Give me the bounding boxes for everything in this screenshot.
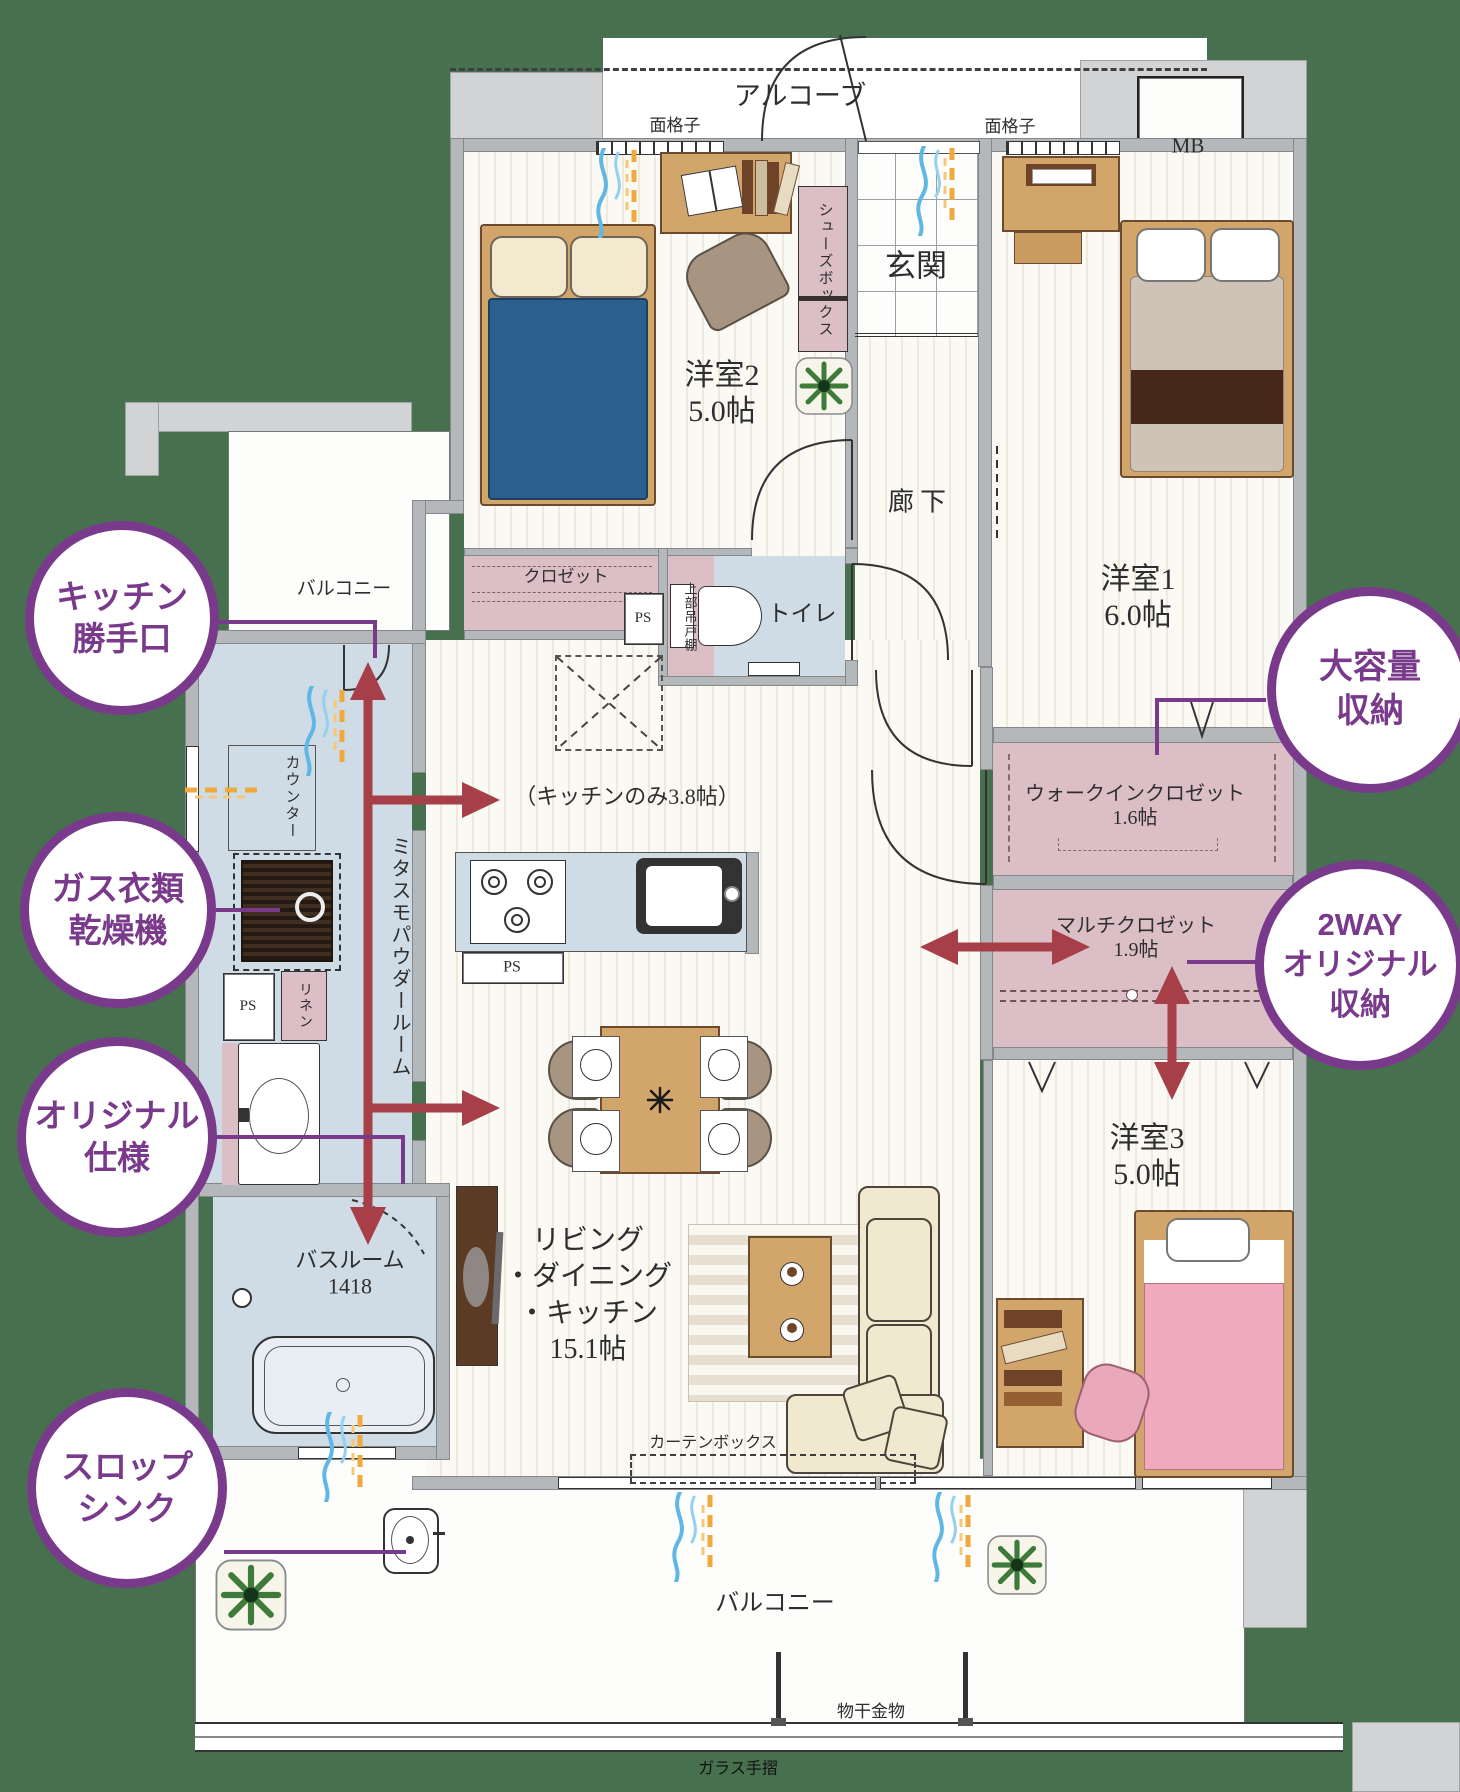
label-curtain-box: カーテンボックス — [649, 1433, 777, 1452]
wic-name: ウォークインクロゼット — [1025, 782, 1245, 806]
label-ps-toilet: PS — [635, 609, 652, 627]
badge-line: キッチン — [56, 576, 188, 618]
bedroom3-size: 5.0帖 — [1110, 1157, 1185, 1193]
badge-line: 仕様 — [84, 1137, 150, 1179]
ldk-line3: ・キッチン — [504, 1296, 672, 1332]
label-alcove: アルコーブ — [734, 80, 867, 112]
ldk-size: 15.1帖 — [504, 1332, 672, 1368]
badge-kitchen-back-door: キッチン 勝手口 — [25, 521, 219, 715]
label-grille-right: 面格子 — [985, 117, 1036, 137]
label-meter-box: MB — [1172, 133, 1205, 158]
label-corridor: 廊下 — [888, 486, 952, 517]
label-balcony-left: バルコニー — [297, 579, 392, 602]
label-ps-powder: PS — [240, 997, 257, 1015]
ldk-line2: ・ダイニング — [504, 1260, 672, 1296]
badge-original-spec: オリジナル 仕様 — [17, 1037, 217, 1237]
label-bedroom1: 洋室1 6.0帖 — [1101, 562, 1176, 634]
label-balcony-bottom: バルコニー — [715, 1590, 835, 1619]
label-counter: カウンター — [284, 755, 299, 840]
badge-line: スロップ — [61, 1446, 193, 1488]
badge-line: 勝手口 — [73, 618, 172, 660]
badge-line: 大容量 — [1319, 646, 1421, 690]
multi-name: マルチクロゼット — [1056, 914, 1216, 938]
badge-large-storage: 大容量 収納 — [1267, 587, 1460, 793]
label-bedroom2: 洋室2 5.0帖 — [685, 358, 760, 430]
badge-line: シンク — [78, 1488, 177, 1530]
badge-gas-dryer: ガス衣類 乾燥機 — [20, 812, 216, 1008]
plant-icons — [216, 358, 1045, 1630]
label-bathroom: バスルーム 1418 — [295, 1248, 404, 1301]
bedroom1-size: 6.0帖 — [1101, 598, 1176, 634]
label-ldk: リビング ・ダイニング ・キッチン 15.1帖 — [504, 1223, 672, 1369]
label-wic: ウォークインクロゼット 1.6帖 — [1025, 782, 1245, 830]
label-multi-closet: マルチクロゼット 1.9帖 — [1056, 914, 1216, 962]
badge-connectors — [216, 622, 1266, 1552]
badge-slop-sink: スロップ シンク — [27, 1388, 227, 1588]
bedroom1-name: 洋室1 — [1101, 562, 1176, 598]
badge-two-way-storage: 2WAY オリジナル 収納 — [1255, 860, 1460, 1070]
label-grille-left: 面格子 — [650, 116, 701, 136]
floor-plan: アルコーブ 面格子 面格子 MB 玄関 シューズボックス 洋室2 5.0帖 廊下… — [0, 0, 1460, 1792]
label-ps-kitchen: PS — [503, 957, 521, 976]
label-entrance: 玄関 — [885, 247, 947, 284]
ldk-line1: リビング — [504, 1223, 672, 1259]
label-shoe-box: シューズボックス — [817, 202, 832, 338]
badge-line: 2WAY — [1317, 905, 1402, 945]
badge-line: 乾燥機 — [69, 910, 168, 952]
bedroom3-name: 洋室3 — [1110, 1121, 1185, 1157]
wic-size: 1.6帖 — [1025, 806, 1245, 830]
bedroom2-name: 洋室2 — [685, 358, 760, 394]
label-toilet: トイレ — [768, 600, 837, 628]
label-glass-handrail: ガラス手摺 — [698, 1759, 778, 1778]
label-upper-shelf: 上部吊戸棚 — [684, 582, 697, 652]
label-kitchen-only: （キッチンのみ3.8帖） — [514, 784, 740, 810]
label-linen: リネン — [297, 982, 311, 1030]
badge-line: 収納 — [1336, 690, 1404, 734]
label-laundry-hardware: 物干金物 — [837, 1702, 905, 1722]
bathroom-name: バスルーム — [295, 1248, 404, 1274]
centerpiece-icon — [648, 1088, 672, 1112]
badge-line: 収納 — [1329, 985, 1391, 1025]
label-closet: クロゼット — [524, 567, 609, 587]
label-bedroom3: 洋室3 5.0帖 — [1110, 1121, 1185, 1193]
badge-line: オリジナル — [1283, 945, 1438, 985]
badge-line: ガス衣類 — [52, 868, 184, 910]
bathroom-size: 1418 — [295, 1274, 404, 1300]
badge-line: オリジナル — [35, 1095, 200, 1137]
bedroom2-size: 5.0帖 — [685, 394, 760, 430]
door-arcs — [344, 35, 1269, 1254]
multi-size: 1.9帖 — [1056, 938, 1216, 962]
label-powder-room: ミタスモパウダールーム — [389, 836, 409, 1078]
